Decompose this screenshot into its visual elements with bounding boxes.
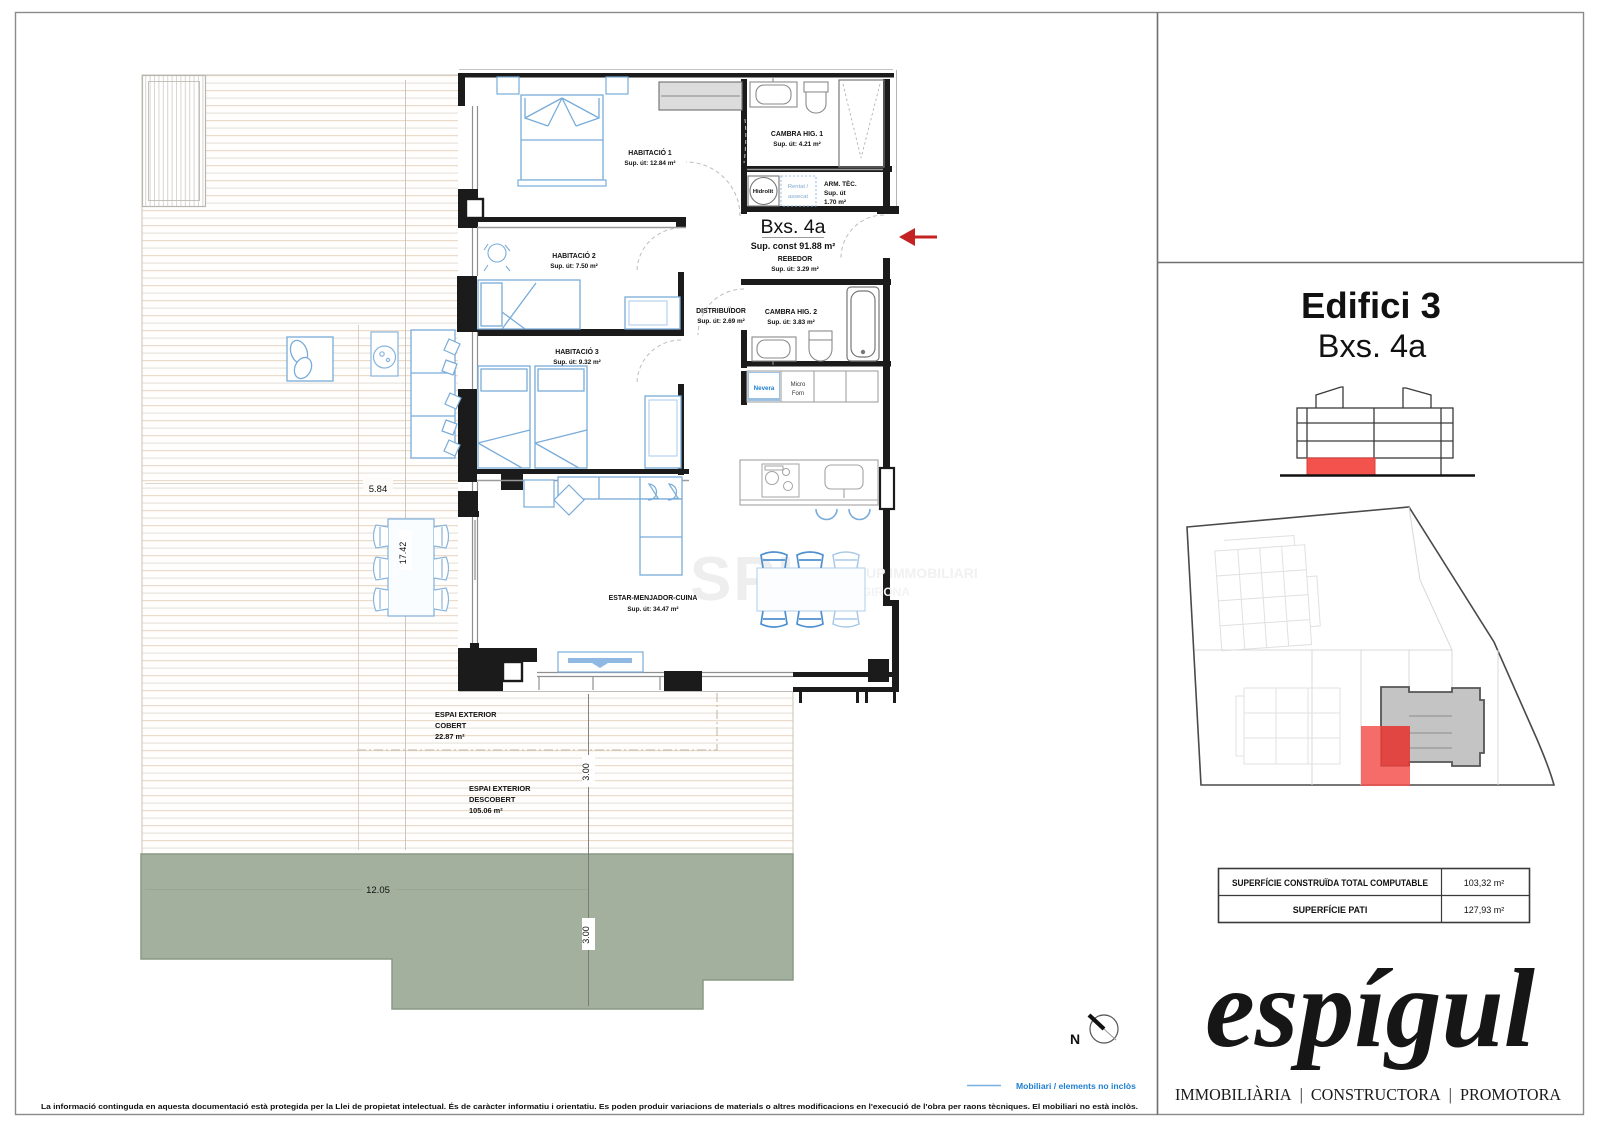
svg-text:Sup. const 91.88 m²: Sup. const 91.88 m²: [751, 241, 836, 251]
svg-text:N: N: [1070, 1031, 1080, 1047]
svg-text:ESPAI EXTERIOR: ESPAI EXTERIOR: [469, 784, 531, 793]
svg-text:12.05: 12.05: [366, 885, 390, 896]
svg-text:127,93 m²: 127,93 m²: [1464, 905, 1505, 915]
svg-text:HABITACIÓ 1: HABITACIÓ 1: [628, 148, 672, 157]
svg-text:ESTAR-MENJADOR-CUINA: ESTAR-MENJADOR-CUINA: [609, 595, 698, 602]
svg-text:ARM. TÈC.: ARM. TÈC.: [824, 179, 857, 188]
svg-text:Sup. út: 3.83 m²: Sup. út: 3.83 m²: [767, 319, 815, 326]
svg-text:Sup. út: 4.21 m²: Sup. út: 4.21 m²: [773, 141, 821, 148]
svg-text:DESCOBERT: DESCOBERT: [469, 795, 516, 804]
svg-text:La informació continguda en aq: La informació continguda en aquesta docu…: [41, 1102, 1138, 1111]
svg-text:1.70 m²: 1.70 m²: [824, 199, 846, 206]
svg-text:SUPERFÍCIE CONSTRUÏDA TOTAL CO: SUPERFÍCIE CONSTRUÏDA TOTAL COMPUTABLE: [1232, 878, 1428, 888]
svg-text:assecat: assecat: [788, 194, 808, 200]
svg-text:Sup. út: 7.50 m²: Sup. út: 7.50 m²: [550, 263, 598, 270]
svg-text:SUPERFÍCIE PATI: SUPERFÍCIE PATI: [1293, 905, 1368, 915]
svg-text:Rentat /: Rentat /: [788, 184, 809, 190]
svg-text:Sup. út: 12.84 m²: Sup. út: 12.84 m²: [624, 160, 675, 167]
svg-text:GIRONA: GIRONA: [862, 585, 910, 599]
svg-text:Bxs. 4a: Bxs. 4a: [760, 216, 825, 238]
svg-text:IMMOBILIÀRIA | CONSTRUCTORA: IMMOBILIÀRIA | CONSTRUCTORA | PROMOTORA: [1175, 1085, 1561, 1104]
svg-text:Hidrolit: Hidrolit: [753, 189, 773, 195]
svg-text:5.84: 5.84: [369, 484, 388, 495]
svg-text:CAMBRA HIG. 1: CAMBRA HIG. 1: [771, 131, 823, 138]
svg-text:Forn: Forn: [792, 391, 804, 397]
svg-text:Nevera: Nevera: [754, 385, 775, 392]
svg-text:3.00: 3.00: [581, 926, 591, 944]
svg-text:Sup. út: 9.32 m²: Sup. út: 9.32 m²: [553, 359, 601, 366]
svg-text:Micro: Micro: [791, 382, 806, 388]
svg-text:REBEDOR: REBEDOR: [778, 256, 812, 263]
svg-text:17.42: 17.42: [398, 542, 408, 565]
svg-text:105.06 m²: 105.06 m²: [469, 806, 503, 815]
svg-text:Sup. út: 3.29 m²: Sup. út: 3.29 m²: [771, 266, 819, 273]
svg-text:CAMBRA HIG. 2: CAMBRA HIG. 2: [765, 309, 817, 316]
svg-text:103,32 m²: 103,32 m²: [1464, 878, 1505, 888]
svg-text:3.00: 3.00: [581, 763, 591, 781]
svg-text:Sup. út: 34.47 m²: Sup. út: 34.47 m²: [627, 606, 678, 613]
svg-text:HABITACIÓ 3: HABITACIÓ 3: [555, 347, 599, 356]
svg-text:Edifici 3: Edifici 3: [1301, 285, 1441, 326]
svg-text:22.87 m²: 22.87 m²: [435, 732, 465, 741]
svg-text:Sup. út: 2.69 m²: Sup. út: 2.69 m²: [697, 318, 745, 325]
svg-text:HABITACIÓ 2: HABITACIÓ 2: [552, 251, 596, 260]
svg-text:DISTRIBUÏDOR: DISTRIBUÏDOR: [696, 307, 746, 315]
svg-text:espígul: espígul: [1205, 947, 1535, 1071]
svg-text:Mobiliari / elements no inclòs: Mobiliari / elements no inclòs: [1016, 1081, 1136, 1091]
svg-text:COBERT: COBERT: [435, 721, 467, 730]
svg-text:Bxs. 4a: Bxs. 4a: [1318, 328, 1427, 364]
svg-text:Sup. út: Sup. út: [824, 190, 847, 197]
svg-text:ESPAI EXTERIOR: ESPAI EXTERIOR: [435, 710, 497, 719]
